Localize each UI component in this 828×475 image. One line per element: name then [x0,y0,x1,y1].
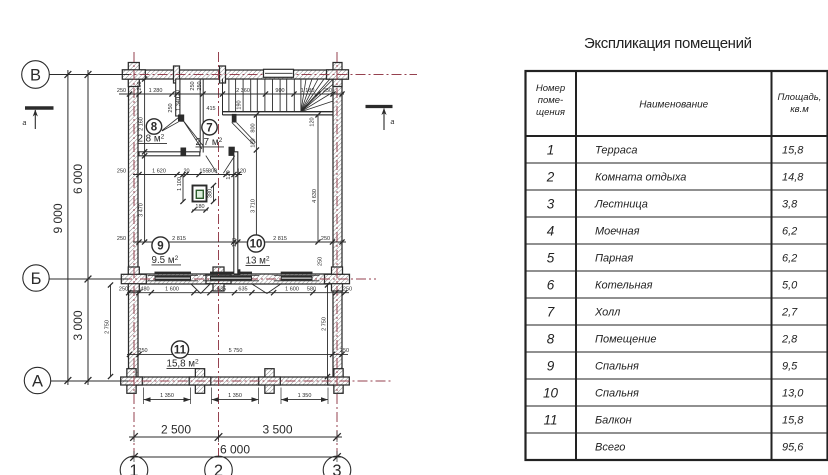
svg-text:800: 800 [208,168,217,174]
svg-text:6 000: 6 000 [71,164,85,194]
svg-text:2 815: 2 815 [273,236,287,242]
svg-text:2 360: 2 360 [236,88,250,94]
svg-text:1 350: 1 350 [160,393,174,399]
svg-text:1 100: 1 100 [177,177,183,191]
svg-text:Б: Б [31,270,42,288]
svg-text:Парная: Парная [595,252,633,264]
svg-text:7: 7 [206,122,212,134]
svg-text:5 750: 5 750 [229,348,243,354]
svg-text:10: 10 [250,239,263,251]
svg-text:А: А [32,372,43,390]
svg-text:3,8: 3,8 [782,198,798,210]
svg-text:9.5 м2: 9.5 м2 [152,255,179,266]
svg-text:4: 4 [547,223,555,238]
svg-text:7: 7 [547,304,555,319]
svg-text:250: 250 [117,236,126,242]
svg-text:Лестница: Лестница [594,198,648,210]
svg-text:15,8 м2: 15,8 м2 [167,358,200,369]
svg-text:5,0: 5,0 [782,279,798,291]
svg-text:Всего: Всего [595,441,625,453]
svg-text:250: 250 [197,81,203,90]
svg-text:2 160: 2 160 [139,117,145,131]
svg-text:6,2: 6,2 [782,252,797,264]
svg-text:415: 415 [206,106,215,112]
svg-text:2 500: 2 500 [161,423,191,437]
svg-text:250: 250 [321,236,330,242]
svg-text:3 000: 3 000 [71,310,85,340]
svg-text:3: 3 [547,196,555,211]
svg-text:900: 900 [275,88,284,94]
svg-text:1: 1 [129,462,138,475]
svg-text:120: 120 [250,138,256,147]
svg-text:1 180: 1 180 [301,88,315,94]
svg-text:250: 250 [190,81,196,90]
svg-text:Холл: Холл [594,306,620,318]
svg-text:3 470: 3 470 [139,203,145,217]
svg-text:Экспликация помещений: Экспликация помещений [584,35,752,52]
svg-text:250: 250 [119,287,128,293]
svg-text:9 000: 9 000 [51,203,65,233]
svg-text:3 710: 3 710 [250,199,256,213]
svg-text:1 350: 1 350 [228,393,242,399]
svg-text:2,7: 2,7 [781,306,798,318]
svg-text:В: В [30,66,41,84]
svg-text:250: 250 [323,88,332,94]
svg-text:5: 5 [547,250,555,265]
svg-text:Терраса: Терраса [595,144,637,156]
svg-text:6 000: 6 000 [220,443,250,457]
svg-text:а: а [23,120,27,127]
svg-text:4 630: 4 630 [312,189,318,203]
svg-text:Номер: Номер [536,83,565,94]
svg-text:Моечная: Моечная [595,225,640,237]
svg-text:120: 120 [310,117,316,126]
svg-text:95,6: 95,6 [782,441,804,453]
svg-text:580: 580 [307,287,316,293]
svg-text:1 600: 1 600 [165,287,179,293]
svg-text:щения: щения [536,107,565,118]
svg-text:Котельная: Котельная [595,279,653,291]
svg-text:8: 8 [547,331,555,346]
svg-text:Наименование: Наименование [639,100,708,111]
svg-text:635: 635 [217,287,226,293]
svg-text:10: 10 [543,385,559,400]
svg-text:1 620: 1 620 [152,168,166,174]
svg-text:1: 1 [547,142,555,157]
svg-text:Спальня: Спальня [595,360,639,372]
svg-text:9: 9 [547,358,555,373]
svg-text:6: 6 [547,277,555,292]
svg-text:1 280: 1 280 [149,88,163,94]
svg-text:2 815: 2 815 [172,236,186,242]
svg-text:250: 250 [117,168,126,174]
svg-text:2.7 м2: 2.7 м2 [196,137,223,148]
svg-text:8: 8 [151,122,158,134]
svg-text:Спальня: Спальня [595,387,639,399]
svg-text:250: 250 [318,257,324,266]
svg-text:6,2: 6,2 [782,225,797,237]
svg-text:2 750: 2 750 [105,320,111,334]
svg-text:13,0: 13,0 [782,387,804,399]
svg-text:190: 190 [237,100,243,109]
svg-text:250: 250 [137,81,143,90]
svg-text:2.8 м2: 2.8 м2 [138,134,165,145]
svg-text:2,8: 2,8 [781,333,798,345]
svg-text:250: 250 [138,348,147,354]
svg-text:2: 2 [214,462,223,475]
svg-text:15,8: 15,8 [782,414,804,426]
svg-text:250: 250 [340,348,349,354]
svg-text:3: 3 [332,462,341,475]
svg-text:а: а [391,119,395,126]
svg-text:Помещение: Помещение [595,333,657,345]
svg-text:120: 120 [226,170,232,179]
svg-text:11: 11 [174,345,187,357]
svg-text:480: 480 [140,287,149,293]
svg-text:Балкон: Балкон [595,414,632,426]
svg-text:11: 11 [543,412,557,427]
svg-text:2: 2 [546,169,555,184]
svg-text:1 340: 1 340 [176,97,182,111]
svg-text:9,5: 9,5 [782,360,798,372]
svg-text:3 500: 3 500 [262,423,292,437]
svg-text:180: 180 [195,204,204,210]
svg-text:800: 800 [250,123,256,132]
svg-text:1 600: 1 600 [285,287,299,293]
svg-text:250: 250 [117,88,126,94]
svg-text:1 350: 1 350 [298,393,312,399]
svg-text:120: 120 [232,238,238,247]
svg-text:14,8: 14,8 [782,171,804,183]
svg-text:120: 120 [237,168,246,174]
svg-text:Площадь,: Площадь, [778,92,822,103]
svg-text:поме-: поме- [538,95,563,106]
svg-text:380: 380 [208,189,214,198]
svg-text:635: 635 [238,287,247,293]
svg-text:кв.м: кв.м [790,104,809,115]
svg-text:Комната отдыха: Комната отдыха [595,171,686,183]
svg-text:250: 250 [168,103,174,112]
svg-text:9: 9 [157,241,163,253]
svg-text:15,8: 15,8 [782,144,804,156]
svg-text:2 750: 2 750 [322,317,328,331]
svg-text:250: 250 [343,287,352,293]
